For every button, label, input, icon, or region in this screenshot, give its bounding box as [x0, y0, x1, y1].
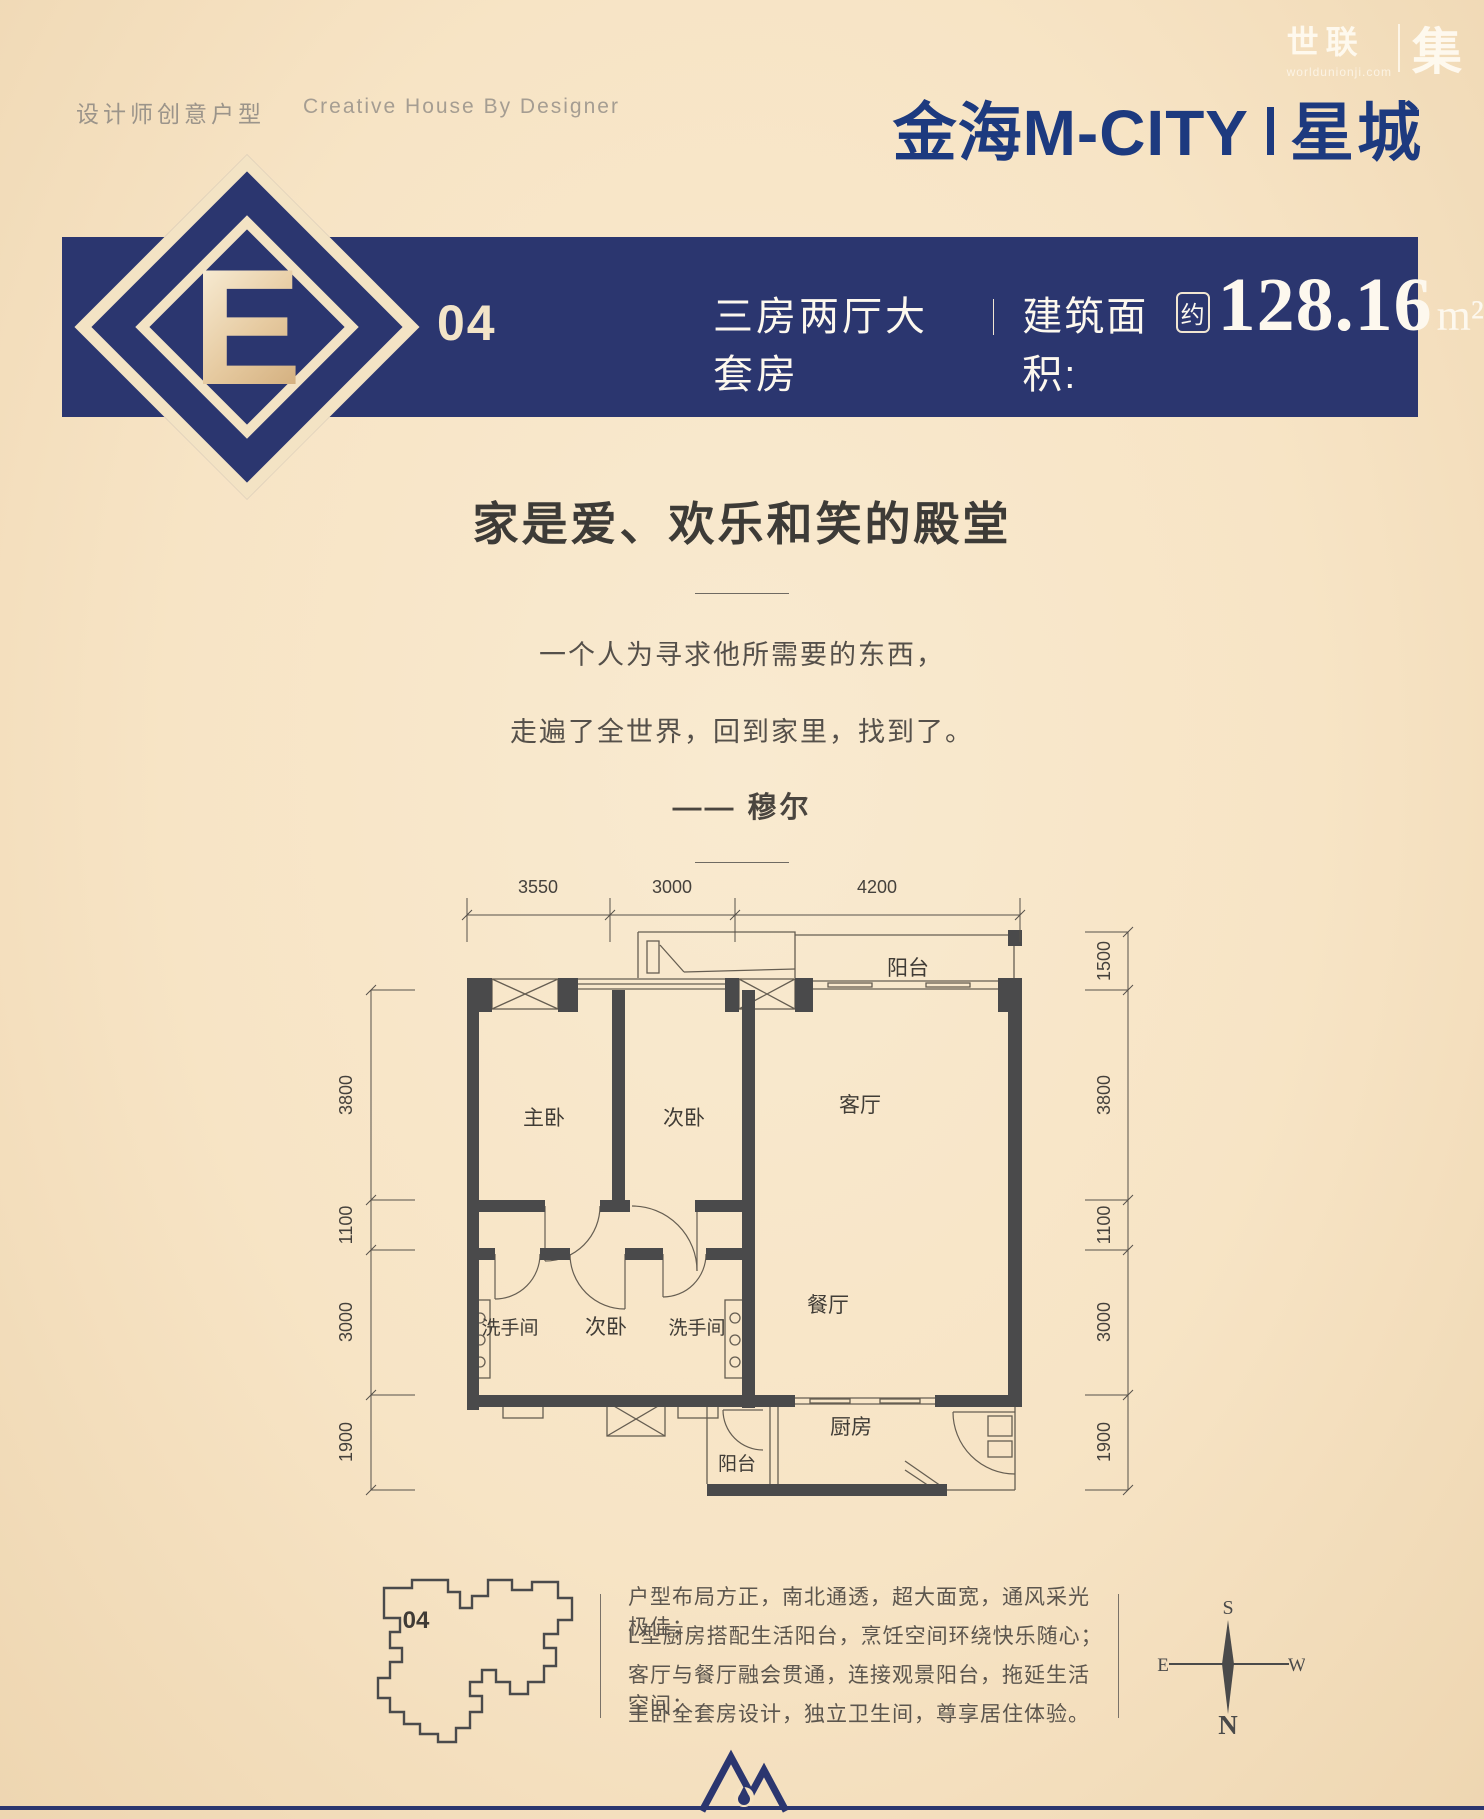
intro-block: 家是爱、欢乐和笑的殿堂 一个人为寻求他所需要的东西， 走遍了全世界，回到家里，找…	[0, 488, 1484, 863]
brand-divider	[1398, 24, 1400, 72]
room-bath-right: 洗手间	[668, 1317, 725, 1339]
compass-ns-needle	[1222, 1620, 1234, 1714]
area-label: 建筑面积:	[1022, 284, 1173, 400]
quote-line-1: 一个人为寻求他所需要的东西，	[0, 633, 1484, 672]
footer-divider-left	[600, 1594, 601, 1718]
quote-author: —— 穆尔	[0, 784, 1484, 826]
dim-left-4: 1900	[336, 1422, 356, 1462]
floorplan-walls	[467, 930, 1022, 1496]
dimension-chain-left: 3800 1100 3000 1900	[336, 985, 415, 1495]
brand-logo-left: 世联 worldunionji.com	[1287, 17, 1392, 79]
poster-page: 世联 worldunionji.com 集 设计师创意户型 Creative H…	[0, 0, 1484, 1819]
desc-line-2: L型厨房搭配生活阳台，烹饪空间环绕快乐随心；	[628, 1622, 1108, 1661]
m-mark-drop	[738, 1793, 750, 1805]
room-bed2: 次卧	[663, 1107, 705, 1130]
footer-logo-rule	[0, 1740, 1484, 1819]
project-title-sub: 星城	[1290, 82, 1424, 174]
site-key-plan: 04	[360, 1578, 600, 1763]
desc-line-3: 客厅与餐厅融会贯通，连接观景阳台，拖延生活空间；	[628, 1661, 1108, 1700]
unit-number: 04	[437, 294, 497, 352]
compass-s-label: S	[1222, 1597, 1233, 1619]
compass-w-label: W	[1288, 1655, 1305, 1676]
title-separator	[1267, 107, 1274, 155]
brand-domain: worldunionji.com	[1287, 65, 1392, 79]
divider-top	[695, 593, 789, 594]
room-bed3: 次卧	[585, 1316, 627, 1339]
dim-left-2: 1100	[336, 1206, 356, 1245]
unit-description: 户型布局方正，南北通透，超大面宽，通风采光极佳； L型厨房搭配生活阳台，烹饪空间…	[628, 1583, 1108, 1739]
dim-left-1: 3800	[336, 1075, 356, 1115]
compass-e-label: E	[1157, 1655, 1169, 1676]
tagline-en: Creative House By Designer	[303, 95, 620, 129]
tagline: 设计师创意户型 Creative House By Designer	[76, 95, 620, 129]
dimension-chain-right: 1500 3800 1100 3000 1900	[1085, 927, 1133, 1495]
quote-line-2: 走遍了全世界，回到家里，找到了。	[0, 710, 1484, 749]
desc-line-1: 户型布局方正，南北通透，超大面宽，通风采光极佳；	[628, 1583, 1108, 1622]
banner-divider	[993, 299, 995, 335]
area-unit: m²	[1437, 290, 1484, 341]
area-value: 128.16	[1218, 262, 1433, 349]
site-plan-unit-number: 04	[403, 1607, 430, 1634]
project-title-main: 金海M-CITY	[893, 82, 1249, 174]
room-master-bed: 主卧	[523, 1107, 565, 1130]
room-living: 客厅	[839, 1094, 881, 1117]
dim-right-5: 1900	[1094, 1422, 1114, 1462]
compass-n-label: N	[1218, 1710, 1238, 1736]
desc-line-4: 主卧全套房设计，独立卫生间，尊享居住体验。	[628, 1700, 1108, 1739]
dim-right-1: 1500	[1094, 941, 1114, 981]
dim-left-3: 3000	[336, 1302, 356, 1342]
brand-name-cn: 世联	[1287, 17, 1392, 63]
footer-divider-right	[1118, 1594, 1119, 1718]
unit-type-label: 三房两厅大套房	[713, 284, 965, 400]
tagline-cn: 设计师创意户型	[76, 95, 265, 129]
site-plan-outline	[378, 1580, 572, 1742]
brand-suffix: 集	[1412, 12, 1462, 84]
m-mark-right-peak	[751, 1770, 786, 1811]
unit-letter: E	[177, 248, 317, 406]
dim-right-3: 1100	[1094, 1206, 1114, 1245]
dim-right-2: 3800	[1094, 1075, 1114, 1115]
area-approx-badge: 约	[1176, 292, 1210, 333]
dim-right-4: 3000	[1094, 1302, 1114, 1342]
floorplan-drawing: 3550 3000 4200 3800 1100 3000 1900	[330, 845, 1160, 1555]
compass: S N E W	[1155, 1596, 1305, 1736]
dim-top-1: 3550	[518, 877, 558, 897]
brand-logo: 世联 worldunionji.com 集	[1287, 12, 1462, 84]
room-bath-left: 洗手间	[481, 1317, 538, 1339]
dim-top-3: 4200	[857, 877, 897, 897]
intro-heading: 家是爱、欢乐和笑的殿堂	[0, 488, 1484, 554]
room-dining: 餐厅	[807, 1294, 849, 1317]
room-balcony-bottom: 阳台	[718, 1453, 756, 1475]
room-balcony-top: 阳台	[887, 957, 929, 980]
room-kitchen: 厨房	[830, 1416, 872, 1439]
project-title: 金海M-CITY 星城	[893, 82, 1424, 174]
dim-top-2: 3000	[652, 877, 692, 897]
banner-info-row: 三房两厅大套房 建筑面积: 约 128.16 m²	[713, 262, 1484, 400]
